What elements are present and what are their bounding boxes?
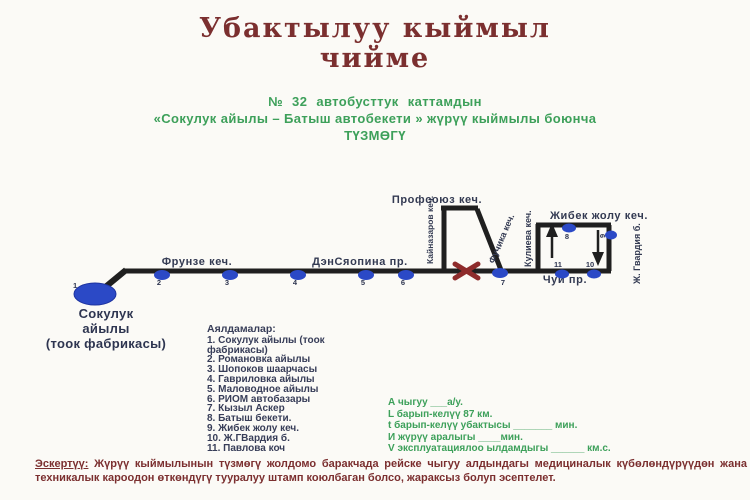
legend-item: 11. Павлова коч [207,444,367,454]
street-label-zhibek: Жибек жолу кеч. [549,210,648,222]
scanned-document-page: Убактылуу кыймыл чийме № 32 автобусттук … [0,0,750,500]
metric-departures: А чыгуу ___а/у. [388,397,728,409]
route-number-line: № 32 автобусттук каттамдын [0,93,750,110]
stop-number-9: 9 [598,234,607,238]
street-label-frunze: Фрунзе кеч. [162,256,233,268]
stop-number-11: 11 [554,260,562,269]
stop-number-7: 7 [501,278,505,287]
legend-item: 1. Сокулук айылы (тоок фабрикасы) [207,336,367,356]
terminal-name-line3: (тоок фабрикасы) [46,336,166,351]
warning-note: Эскертүү: Жүрүү кыймылынын түзмөгү жолдо… [35,458,747,485]
stop-number-3: 3 [225,278,229,287]
stop-dot-7 [492,268,508,278]
street-label-profsoyuz: Профсоюз кеч. [392,194,482,206]
route-scheme-line: ТҮЗМӨГҮ [0,127,750,144]
warning-note-label: Эскертүү: [35,458,88,470]
stop-number-6: 6 [401,278,405,287]
legend-title: Аялдамалар: [207,325,367,335]
route-diagram: 1 Сокулук айылы (тоок фабрикасы) Фрунзе … [0,178,750,356]
stop-number-10: 10 [586,260,594,269]
route-metrics: А чыгуу ___а/у. L барып-келүү 87 км. t б… [388,397,728,455]
stop-number-8: 8 [565,232,569,241]
page-title: Убактылуу кыймыл чийме [0,14,750,74]
warning-note-text: Жүрүү кыймылынын түзмөгү жолдомо баракча… [35,458,747,484]
metric-interval: И жүрүү аралыгы ____мин. [388,432,728,444]
stop-number-2: 2 [157,278,161,287]
page-title-line1: Убактылуу кыймыл [0,14,750,44]
stop-number-1: 1 [73,281,77,290]
street-label-gvardia: Ж. Гвардия б. [632,223,642,285]
street-label-kaynazarov: Кайназаров кеч. [425,196,435,264]
metric-roundtrip-time: t барып-келүү убактысы _______ мин. [388,420,728,432]
street-label-densyaopina: ДэнСяопина пр. [312,256,408,268]
stop-dot-10 [587,270,601,279]
stop-dot-1 [74,283,116,305]
terminal-name-line1: Сокулук [79,306,134,321]
page-title-line2: чийме [0,44,750,74]
metric-roundtrip-distance: L барып-келүү 87 км. [388,409,728,421]
stops-legend: Аялдамалар: 1. Сокулук айылы (тоок фабри… [207,325,367,453]
route-subtitle: № 32 автобусттук каттамдын «Сокулук айыл… [0,93,750,144]
street-label-kulieva: Кулиева кеч. [523,210,533,267]
up-arrow-icon [546,223,558,258]
stop-number-5: 5 [361,278,365,287]
terminal-name-line2: айылы [82,321,129,336]
route-name-line: «Сокулук айылы – Батыш автобекети » жүрү… [0,110,750,127]
stop-dot-11 [555,270,569,279]
metric-speed: V эксплуатациялоо ылдамдыгы ______ км.с. [388,443,728,455]
